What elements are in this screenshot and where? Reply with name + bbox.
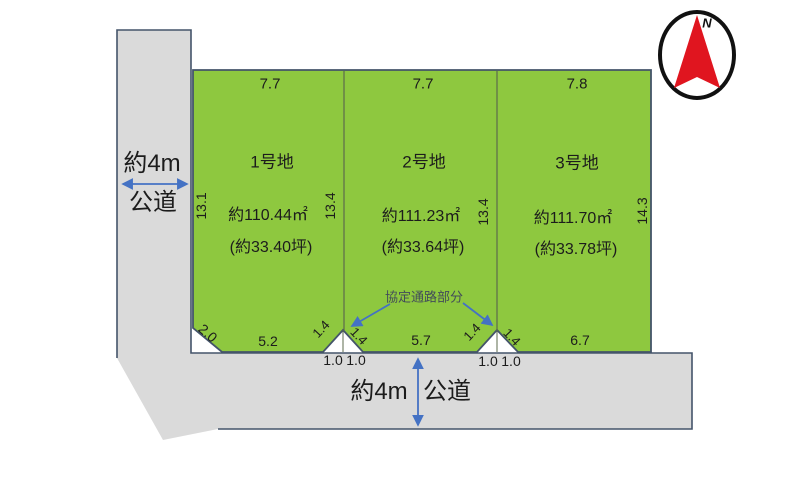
bottom-road-width-label: 約4m bbox=[350, 380, 407, 404]
plot2-top-dim: 7.7 bbox=[413, 77, 434, 92]
plot2-name: 2号地 bbox=[402, 154, 445, 171]
plot2-area-tsubo: (約33.64坪) bbox=[382, 240, 465, 256]
plot1-top-dim: 7.7 bbox=[260, 77, 281, 92]
plot1-name: 1号地 bbox=[250, 154, 293, 171]
plot2-area-m2: 約111.23㎡ bbox=[382, 209, 461, 225]
left-road-kind-label: 公道 bbox=[129, 191, 177, 215]
compass-icon bbox=[660, 12, 734, 98]
bottom-road-kind-label: 公道 bbox=[423, 380, 471, 404]
plot1-right-dim: 13.4 bbox=[323, 192, 337, 219]
notch1-base-right-dim: 1.0 bbox=[346, 353, 365, 367]
land-plot-diagram: 7.7 7.7 7.8 1号地 2号地 3号地 約110.44㎡ 約111.23… bbox=[0, 0, 800, 477]
plot3-top-dim: 7.8 bbox=[567, 77, 588, 92]
compass-north-label: N bbox=[702, 17, 711, 30]
passage-label: 協定通路部分 bbox=[385, 291, 463, 304]
plot2-frontage-dim: 5.7 bbox=[411, 333, 430, 347]
plot3-name: 3号地 bbox=[555, 155, 598, 172]
notch2-base-left-dim: 1.0 bbox=[478, 354, 497, 368]
left-road-width-label: 約4m bbox=[123, 152, 180, 176]
plot1-area-m2: 約110.44㎡ bbox=[228, 208, 308, 224]
plot3-area-m2: 約111.70㎡ bbox=[534, 211, 613, 227]
notch1-base-left-dim: 1.0 bbox=[323, 353, 342, 367]
plot1-frontage-dim: 5.2 bbox=[258, 334, 277, 348]
notch2-base-right-dim: 1.0 bbox=[501, 354, 520, 368]
plot3-frontage-dim: 6.7 bbox=[570, 333, 589, 347]
plot2-right-dim: 13.4 bbox=[476, 198, 490, 225]
plot1-area-tsubo: (約33.40坪) bbox=[230, 240, 313, 256]
plot3-area-tsubo: (約33.78坪) bbox=[535, 242, 618, 258]
plot1-left-dim: 13.1 bbox=[194, 192, 208, 219]
plot3-right-dim: 14.3 bbox=[635, 197, 649, 224]
